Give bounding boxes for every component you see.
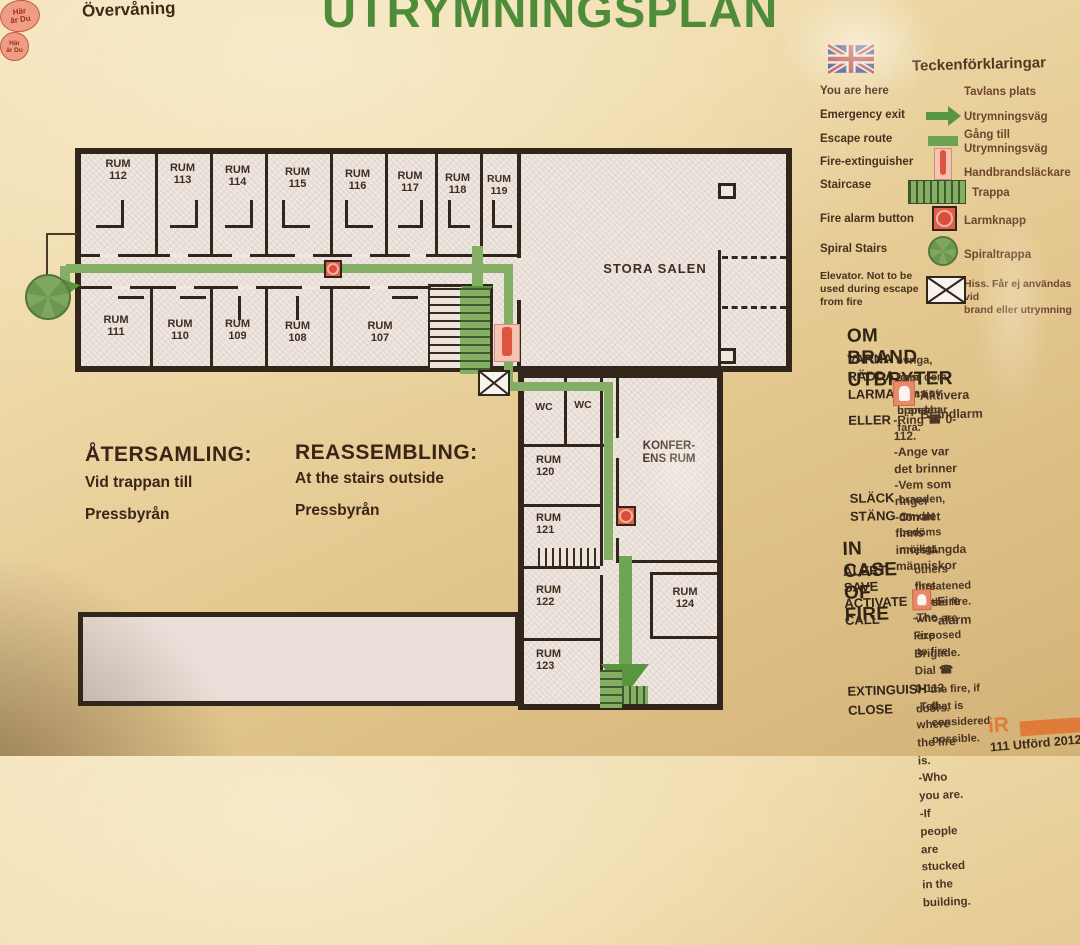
legend-sv-hiss: Hiss. Får ej användas vid brand eller ut… [964,278,1080,317]
legend-en-staircase: Staircase [820,178,871,192]
wall [238,296,241,320]
legend-en-you-are-here: You are here [820,84,889,98]
fire-alarm-button-icon [616,506,636,526]
bottom-left-room [78,612,520,706]
legend-title: Teckenförklaringar [912,54,1046,75]
escape-route-legend-icon [928,136,958,146]
assembly-title-en: REASSEMBLING: [295,441,478,465]
wall [492,200,495,228]
stora-salen-label: STORA SALEN [555,262,755,277]
room-117-label: RUM 117 [385,170,435,195]
exit-staircase [622,686,648,704]
wall [46,233,48,277]
term-close: CLOSE [848,701,893,718]
wall [121,200,124,228]
room-115-label: RUM 115 [265,166,330,191]
movable-partition [722,306,786,309]
you-are-here-legend-icon: Här är Du [0,32,29,61]
spiral-stairs-legend-icon [928,236,958,266]
wall [345,225,373,228]
wall [296,296,299,320]
wall [250,200,253,228]
term-activate: ACTIVATE [844,594,908,611]
wall [435,154,438,254]
room-119-label: RUM 119 [479,174,519,198]
wall [517,154,521,258]
term-call: CALL [845,612,880,628]
term-alert: ALERT [843,562,887,579]
page-title: UTRYMNINGSPLAN [322,0,778,38]
fire-alarm-activate-icon [912,589,932,611]
fire-alarm-button-icon [324,260,342,278]
exit-staircase [600,670,622,708]
room-109-label: RUM 109 [210,318,265,343]
door-gap [232,254,250,257]
wall [480,154,483,254]
door-gap [302,286,320,289]
wall [48,233,77,235]
door-gap [238,286,256,289]
wall-notch [718,183,736,199]
term-eller: ELLER [848,412,891,428]
text-close: doors. [916,700,950,718]
text-call: -The Fire Brigade. Dial ☎ 0-112. -Tell w… [913,609,971,913]
room-124-label: RUM 124 [648,586,722,611]
room-113-label: RUM 113 [155,162,210,187]
wall [225,225,253,228]
wall [650,572,722,575]
floor-label: Övervåning [82,0,176,22]
legend-en-fire-extinguisher: Fire-extinguisher [820,155,913,169]
wall [524,566,600,569]
door-gap [295,254,313,257]
legend-sv-gang-till: Gång till Utrymningsväg [964,128,1048,157]
escape-route [504,382,610,391]
spiral-stairs-icon [25,274,71,320]
room-118-label: RUM 118 [435,172,480,197]
legend-en-fire-alarm-button: Fire alarm button [820,212,914,226]
room-120-label: RUM 120 [524,454,600,479]
wall [524,638,600,641]
wall [385,154,388,254]
wall [448,225,470,228]
wall [616,378,619,438]
assembly-line2-en: Pressbyrån [295,502,379,520]
term-save: SAVE [844,579,879,595]
escape-route [66,264,510,273]
room-114-label: RUM 114 [210,164,265,189]
wall [180,296,206,299]
certifier-logo: iR [987,713,1010,738]
wall [282,225,310,228]
escape-route [619,556,632,668]
door-gap [100,254,118,257]
wall [650,636,722,639]
wall [448,200,451,228]
legend-sv-utrymningsvag: Utrymningsväg [964,110,1048,124]
elevator-legend-icon [926,276,966,309]
fire-extinguisher-icon [494,324,520,362]
room-108-label: RUM 108 [265,320,330,345]
movable-partition [722,256,786,259]
room-122-label: RUM 122 [524,584,600,609]
uk-flag-icon [828,44,874,79]
wall [492,225,512,228]
term-radda: RÄDDA [847,368,894,384]
term-stang: STÄNG [850,508,896,524]
room-121-label: RUM 121 [524,512,600,537]
escape-route [472,246,483,288]
escape-route [604,382,613,560]
term-extinguish: EXTINGUISH [847,681,927,699]
door-gap [352,254,370,257]
emergency-exit-arrow-icon [948,106,961,126]
legend-sv-larmknapp: Larmknapp [964,214,1026,228]
legend-en-emergency-exit: Emergency exit [820,108,905,122]
door-gap [170,254,188,257]
emergency-exit-arrow-icon [926,112,948,120]
assembly-title-sv: ÅTERSAMLING: [85,443,252,467]
room-107-label: RUM 107 [330,320,430,345]
legend-sv-trappa: Trappa [972,186,1010,200]
room-123-label: RUM 123 [524,648,600,673]
room-112-label: RUM 112 [81,158,155,183]
legend-en-escape-route: Escape route [820,132,892,146]
staircase-escape [460,288,490,374]
wall [524,444,604,447]
room-116-label: RUM 116 [330,168,385,193]
legend-en-spiral-stairs: Spiral Stairs [820,242,887,256]
wall [96,225,124,228]
wall [420,200,423,228]
wc-label: WC [562,400,604,412]
legend-sv-handbrandslackare: Handbrandsläckare [964,166,1071,180]
door-gap [176,286,194,289]
legend-sv-tavlans-plats: Tavlans plats [964,85,1036,99]
legend-en-elevator: Elevator. Not to be used during escape f… [820,270,919,309]
staircase [430,288,460,368]
evacuation-plan-photo: { "header": { "floor_label": "Övervåning… [0,0,1080,756]
term-slack: SLÄCK [850,490,895,506]
room-111-label: RUM 111 [81,314,151,339]
wall [170,225,198,228]
room-110-label: RUM 110 [150,318,210,343]
staircase [538,548,600,566]
fire-extinguisher-legend-icon [934,148,952,180]
assembly-line2-sv: Pressbyrån [85,506,169,524]
term-varna: VARNA [847,351,893,367]
wall [118,296,144,299]
wc-label: WC [524,402,564,414]
konferens-rum-label: KONFER- ENS RUM [622,440,716,466]
assembly-line1-sv: Vid trappan till [85,474,192,492]
wall [282,200,285,228]
wall [524,504,600,507]
you-are-here-marker: Här är Du [0,0,42,35]
text-stang: dörrar. [899,509,934,526]
legend-sv-spiraltrappa: Spiraltrappa [964,248,1031,262]
door-gap [410,254,426,257]
term-larma: LARMA [848,386,895,402]
wall-notch [718,348,736,364]
door-gap [112,286,130,289]
assembly-line1-en: At the stairs outside [295,470,444,488]
staircase-legend-icon [908,180,966,204]
elevator-icon [478,370,510,396]
wall [195,200,198,228]
wall [392,296,418,299]
fire-alarm-legend-icon [932,206,957,231]
fire-alarm-activate-icon [893,381,915,406]
door-gap [370,286,388,289]
wall [345,200,348,228]
